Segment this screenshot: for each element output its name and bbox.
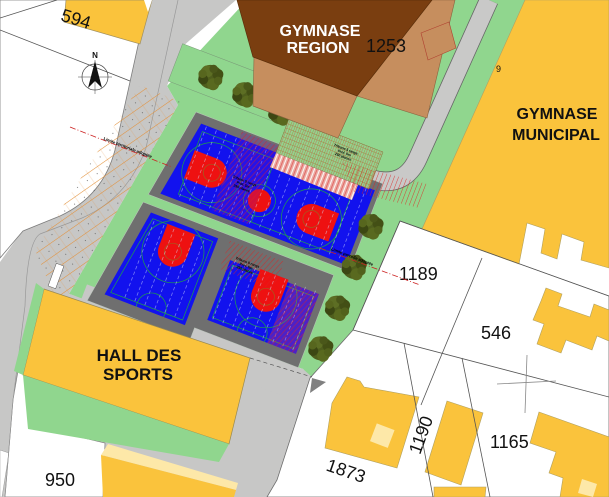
svg-text:1165: 1165 (490, 432, 529, 452)
svg-text:GYMNASE: GYMNASE (517, 106, 598, 123)
svg-text:GYMNASE: GYMNASE (280, 23, 361, 40)
svg-text:9: 9 (496, 64, 501, 74)
svg-text:MUNICIPAL: MUNICIPAL (512, 127, 600, 144)
svg-text:1253: 1253 (366, 36, 406, 56)
svg-text:HALL DES: HALL DES (97, 346, 182, 365)
svg-text:SPORTS: SPORTS (103, 365, 173, 384)
svg-text:546: 546 (481, 323, 511, 343)
svg-text:REGION: REGION (286, 40, 349, 57)
svg-text:N: N (92, 51, 98, 60)
svg-text:1189: 1189 (399, 264, 438, 284)
svg-text:950: 950 (45, 470, 75, 490)
